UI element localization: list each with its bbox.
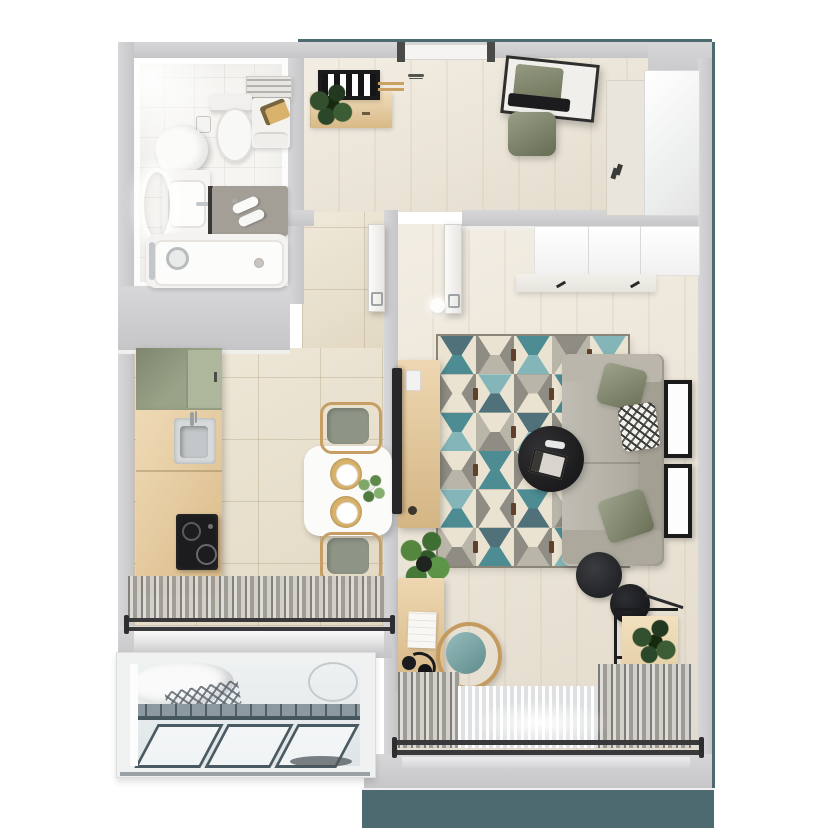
balcony-dark-smudge <box>290 756 352 767</box>
rug-dash-accent <box>473 541 478 553</box>
rug-dash-accent <box>549 541 554 553</box>
shower-head <box>166 247 189 270</box>
cabinet-seam-1 <box>588 226 589 274</box>
bath-mat <box>212 186 288 236</box>
rug-hourglass-motif <box>514 528 552 566</box>
rug-hourglass-motif <box>438 451 476 489</box>
rug-dash-accent <box>511 426 516 438</box>
living-wall-cabinet <box>534 226 700 276</box>
rug-dash-accent <box>511 503 516 515</box>
media-device <box>406 370 421 391</box>
rug-cell <box>438 374 476 412</box>
rug-hourglass-motif <box>476 451 514 489</box>
toilet-bowl <box>216 108 254 162</box>
pouf-ottoman <box>508 112 556 156</box>
desk-chair-seat <box>446 632 486 674</box>
cabinet-seam-2 <box>640 226 641 274</box>
ceiling-vent <box>246 76 292 100</box>
rug-hourglass-motif <box>476 528 514 566</box>
cooktop-burner-1 <box>182 522 201 541</box>
rug-cell <box>476 413 514 451</box>
wall-shaft-below-bathroom <box>118 286 290 354</box>
balcony-beam-lower <box>130 716 360 720</box>
rug-hourglass-motif <box>476 336 514 374</box>
console-knob <box>408 506 417 515</box>
entry-door-post-right <box>487 42 495 62</box>
rug-cell <box>438 413 476 451</box>
rug-hourglass-motif <box>476 413 514 451</box>
rug-dash-accent <box>549 388 554 400</box>
balcony-table-outline <box>308 662 358 702</box>
living-curtain-rod-back <box>394 750 702 755</box>
living-door-handle <box>448 294 460 308</box>
rug-dash-accent <box>511 349 516 361</box>
rug-dash-accent <box>473 464 478 476</box>
rug-cell <box>438 451 476 489</box>
kitchen-window-curtains <box>128 576 386 620</box>
living-rod-cap-right <box>699 737 704 758</box>
rug-hourglass-motif <box>438 413 476 451</box>
counter-seam-1 <box>136 470 222 472</box>
entry-door-handle <box>408 74 424 77</box>
living-curtain-right <box>598 664 694 748</box>
wardrobe-right-panel <box>644 70 700 216</box>
facade-bottom-strip <box>362 788 714 828</box>
rug-hourglass-motif <box>438 336 476 374</box>
rug-cell <box>514 489 552 527</box>
entry-door-post-left <box>397 42 405 62</box>
wall-frame-bottom <box>664 464 692 538</box>
ceiling-spotlight <box>430 298 445 313</box>
rug-cell <box>514 528 552 566</box>
kitchen-door-handle <box>371 292 383 306</box>
rolled-towels <box>254 132 288 147</box>
rug-cell <box>514 374 552 412</box>
wardrobe-left-panel <box>606 80 646 216</box>
cooktop-knob <box>208 524 213 529</box>
key-shelf <box>378 82 404 85</box>
rug-cell <box>438 336 476 374</box>
rug-cell <box>438 489 476 527</box>
rug-hourglass-motif <box>438 374 476 412</box>
floorplan-canvas <box>0 0 828 828</box>
kitchen-rod-cap-right <box>390 615 395 634</box>
living-curtain-rod-front <box>394 740 702 745</box>
rug-hourglass-motif <box>476 489 514 527</box>
tv-screen <box>392 368 402 514</box>
table-centerpiece-plant <box>348 468 394 510</box>
kitchen-faucet <box>190 412 194 426</box>
kitchen-curtain-rod-back <box>126 627 392 631</box>
rug-cell <box>476 489 514 527</box>
kitchen-curtain-rod-front <box>126 618 392 622</box>
kitchen-rod-cap-left <box>124 615 129 634</box>
balcony-mullion-left <box>130 664 138 766</box>
rug-hourglass-motif <box>514 374 552 412</box>
rug-cell <box>476 374 514 412</box>
rug-cell <box>476 336 514 374</box>
wall-hall-bottom-stub <box>288 210 314 226</box>
hall-plant <box>302 80 360 132</box>
living-sill-lit-strip <box>402 757 690 769</box>
fiddle-plant-pot <box>416 556 432 572</box>
balcony-bottom-edge <box>120 772 370 776</box>
dining-chair-bottom-seat <box>327 538 369 574</box>
desk-paper <box>407 612 436 649</box>
living-curtain-left <box>398 672 460 748</box>
rug-hourglass-motif <box>438 489 476 527</box>
tub-faucet-bar <box>149 242 155 280</box>
pillow-diamond-pattern <box>617 402 661 453</box>
rug-hourglass-motif <box>476 374 514 412</box>
rug-cell <box>514 336 552 374</box>
cooktop-burner-2 <box>196 544 217 565</box>
living-rod-cap-left <box>392 737 397 758</box>
rug-hourglass-motif <box>514 489 552 527</box>
kitchen-sink-bowl <box>180 426 208 458</box>
kitchen-window-glow <box>134 630 384 654</box>
dining-chair-top-seat <box>327 408 369 444</box>
console-handle-2 <box>362 112 370 115</box>
balcony-rail-beam <box>130 704 360 716</box>
cabinet-door-handle <box>214 372 217 382</box>
rug-cell <box>476 528 514 566</box>
wall-right <box>698 58 712 788</box>
shelf-frame-top <box>614 608 678 611</box>
tub-drain <box>254 258 264 268</box>
rug-hourglass-motif <box>514 336 552 374</box>
entry-door <box>404 44 490 60</box>
rug-dash-accent <box>473 388 478 400</box>
round-led-mirror <box>140 168 174 242</box>
wall-frame-top <box>664 380 692 458</box>
rug-cell <box>476 451 514 489</box>
